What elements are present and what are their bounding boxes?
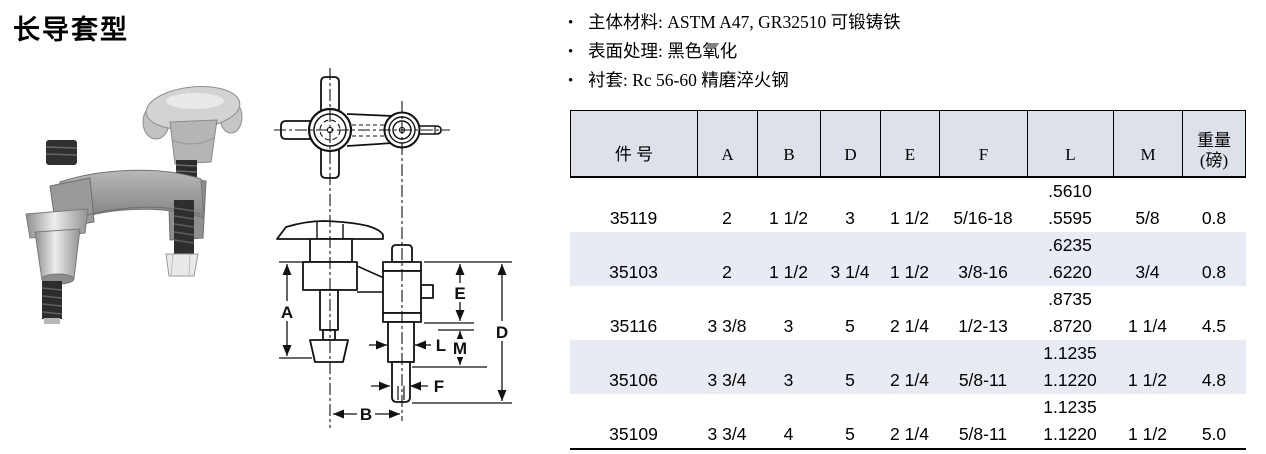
bullet-material-text: 主体材料: ASTM A47, GR32510 可锻铸铁 — [588, 12, 901, 32]
link-edge-bottom — [347, 143, 393, 146]
cell-E: 2 1/4 — [880, 367, 939, 394]
cell-L-lower: .8720 — [1027, 313, 1113, 340]
photo-lower-stud — [42, 281, 62, 324]
bushing-tip — [392, 362, 410, 402]
cell-weight: 5.0 — [1182, 421, 1246, 448]
bullet-finish-text: 表面处理: 黑色氧化 — [588, 41, 737, 61]
cell-part-number: 35103 — [570, 259, 697, 286]
table-row: .56103511921 1/231 1/25/16-18.55955/80.8 — [570, 178, 1246, 232]
cell-L-lower: 1.1220 — [1027, 421, 1113, 448]
table-row: .62353510321 1/23 1/41 1/23/8-16.62203/4… — [570, 232, 1246, 286]
cell-A: 3 3/4 — [697, 367, 757, 394]
cell-A: 3 3/8 — [697, 313, 757, 340]
collar — [310, 239, 352, 262]
arm-edge — [357, 266, 384, 278]
cell-B: 4 — [757, 421, 820, 448]
cell-part-number: 35106 — [570, 367, 697, 394]
cell-F: 5/8-11 — [939, 421, 1027, 448]
cell-weight: 0.8 — [1182, 205, 1246, 232]
col-header-B: B — [757, 111, 820, 176]
cell-part-number: 35119 — [570, 205, 697, 232]
cell-weight: 4.5 — [1182, 313, 1246, 340]
link-edge-top — [347, 114, 393, 116]
dim-label-L: L — [436, 336, 446, 355]
technical-drawing-svg: A E M D L F B — [250, 50, 550, 450]
table-body: .56103511921 1/231 1/25/16-18.55955/80.8… — [570, 178, 1246, 450]
cell-weight: 4.8 — [1182, 367, 1246, 394]
product-photo-svg — [10, 70, 250, 385]
cell-L-upper: .5610 — [1027, 178, 1113, 205]
table-header-row: 件 号 A B D E F L M 重量 (磅) — [570, 110, 1246, 178]
cell-E: 1 1/2 — [880, 259, 939, 286]
cell-A: 3 3/4 — [697, 421, 757, 448]
cell-F: 5/16-18 — [939, 205, 1027, 232]
cell-F: 5/8-11 — [939, 367, 1027, 394]
cell-D: 5 — [820, 313, 880, 340]
dim-label-D: D — [496, 323, 508, 342]
cell-E: 1 1/2 — [880, 205, 939, 232]
bullet-icon: • — [568, 9, 588, 37]
page-title: 长导套型 — [13, 8, 129, 47]
spindle-neck — [323, 330, 335, 340]
technical-drawing: A E M D L F B — [250, 50, 550, 450]
cell-L-upper: .6235 — [1027, 232, 1113, 259]
cell-M: 5/8 — [1113, 205, 1182, 232]
dim-label-B: B — [360, 405, 372, 424]
cell-part-number: 35116 — [570, 313, 697, 340]
cell-L-upper: 1.1235 — [1027, 340, 1113, 367]
cell-D: 5 — [820, 421, 880, 448]
cell-B: 3 — [757, 367, 820, 394]
cell-E: 2 1/4 — [880, 313, 939, 340]
dim-label-F: F — [434, 377, 444, 396]
col-header-A: A — [697, 111, 757, 176]
table-row: 1.1235351093 3/4452 1/45/8-111.12201 1/2… — [570, 394, 1246, 448]
bullet-icon: • — [568, 67, 588, 95]
bullet-icon: • — [568, 38, 588, 66]
spec-bullets: •主体材料: ASTM A47, GR32510 可锻铸铁 •表面处理: 黑色氧… — [568, 8, 901, 95]
cell-weight: 0.8 — [1182, 259, 1246, 286]
cell-F: 1/2-13 — [939, 313, 1027, 340]
weight-header-line1: 重量 — [1197, 131, 1231, 151]
spec-table: 件 号 A B D E F L M 重量 (磅) .56103511921 1/… — [570, 110, 1246, 450]
product-photo — [10, 70, 250, 385]
cell-M: 1 1/2 — [1113, 367, 1182, 394]
cell-A: 2 — [697, 259, 757, 286]
bullet-bushing: •衬套: Rc 56-60 精磨淬火钢 — [568, 66, 901, 95]
cell-B: 1 1/2 — [757, 205, 820, 232]
spindle-stem — [320, 290, 338, 330]
cell-E: 2 1/4 — [880, 421, 939, 448]
cell-L-upper: 1.1235 — [1027, 394, 1113, 421]
cell-part-number: 35109 — [570, 421, 697, 448]
cell-D: 5 — [820, 367, 880, 394]
cell-L-lower: .5595 — [1027, 205, 1113, 232]
cell-A: 2 — [697, 205, 757, 232]
dim-label-A: A — [281, 303, 293, 322]
cell-D: 3 — [820, 205, 880, 232]
col-header-E: E — [880, 111, 939, 176]
photo-bushing — [26, 209, 88, 284]
photo-knob — [143, 82, 242, 164]
table-row: .8735351163 3/8352 1/41/2-13.87201 1/44.… — [570, 286, 1246, 340]
table-row: 1.1235351063 3/4352 1/45/8-111.12201 1/2… — [570, 340, 1246, 394]
col-header-F: F — [939, 111, 1027, 176]
col-header-D: D — [820, 111, 880, 176]
cell-L-upper: .8735 — [1027, 286, 1113, 313]
col-header-part: 件 号 — [570, 111, 697, 176]
dim-label-M: M — [453, 339, 467, 358]
cell-M: 1 1/4 — [1113, 313, 1182, 340]
cell-L-lower: .6220 — [1027, 259, 1113, 286]
bullet-finish: •表面处理: 黑色氧化 — [568, 37, 901, 66]
top-view — [281, 77, 441, 178]
dim-label-E: E — [454, 284, 465, 303]
cell-B: 1 1/2 — [757, 259, 820, 286]
cell-M: 3/4 — [1113, 259, 1182, 286]
bullet-material: •主体材料: ASTM A47, GR32510 可锻铸铁 — [568, 8, 901, 37]
col-header-weight: 重量 (磅) — [1182, 111, 1246, 176]
front-view — [277, 221, 433, 402]
col-header-M: M — [1113, 111, 1182, 176]
clamp-foot — [310, 340, 348, 362]
catalog-page: 长导套型 •主体材料: ASTM A47, GR32510 可锻铸铁 •表面处理… — [0, 0, 1266, 454]
col-header-L: L — [1027, 111, 1113, 176]
photo-left-collar — [46, 140, 77, 165]
weight-header-line2: (磅) — [1200, 151, 1228, 171]
cell-F: 3/8-16 — [939, 259, 1027, 286]
bushing-shaft — [388, 322, 414, 362]
side-tab — [421, 285, 433, 298]
cell-L-lower: 1.1220 — [1027, 367, 1113, 394]
cell-B: 3 — [757, 313, 820, 340]
cell-D: 3 1/4 — [820, 259, 880, 286]
bullet-bushing-text: 衬套: Rc 56-60 精磨淬火钢 — [588, 70, 789, 90]
cell-M: 1 1/2 — [1113, 421, 1182, 448]
